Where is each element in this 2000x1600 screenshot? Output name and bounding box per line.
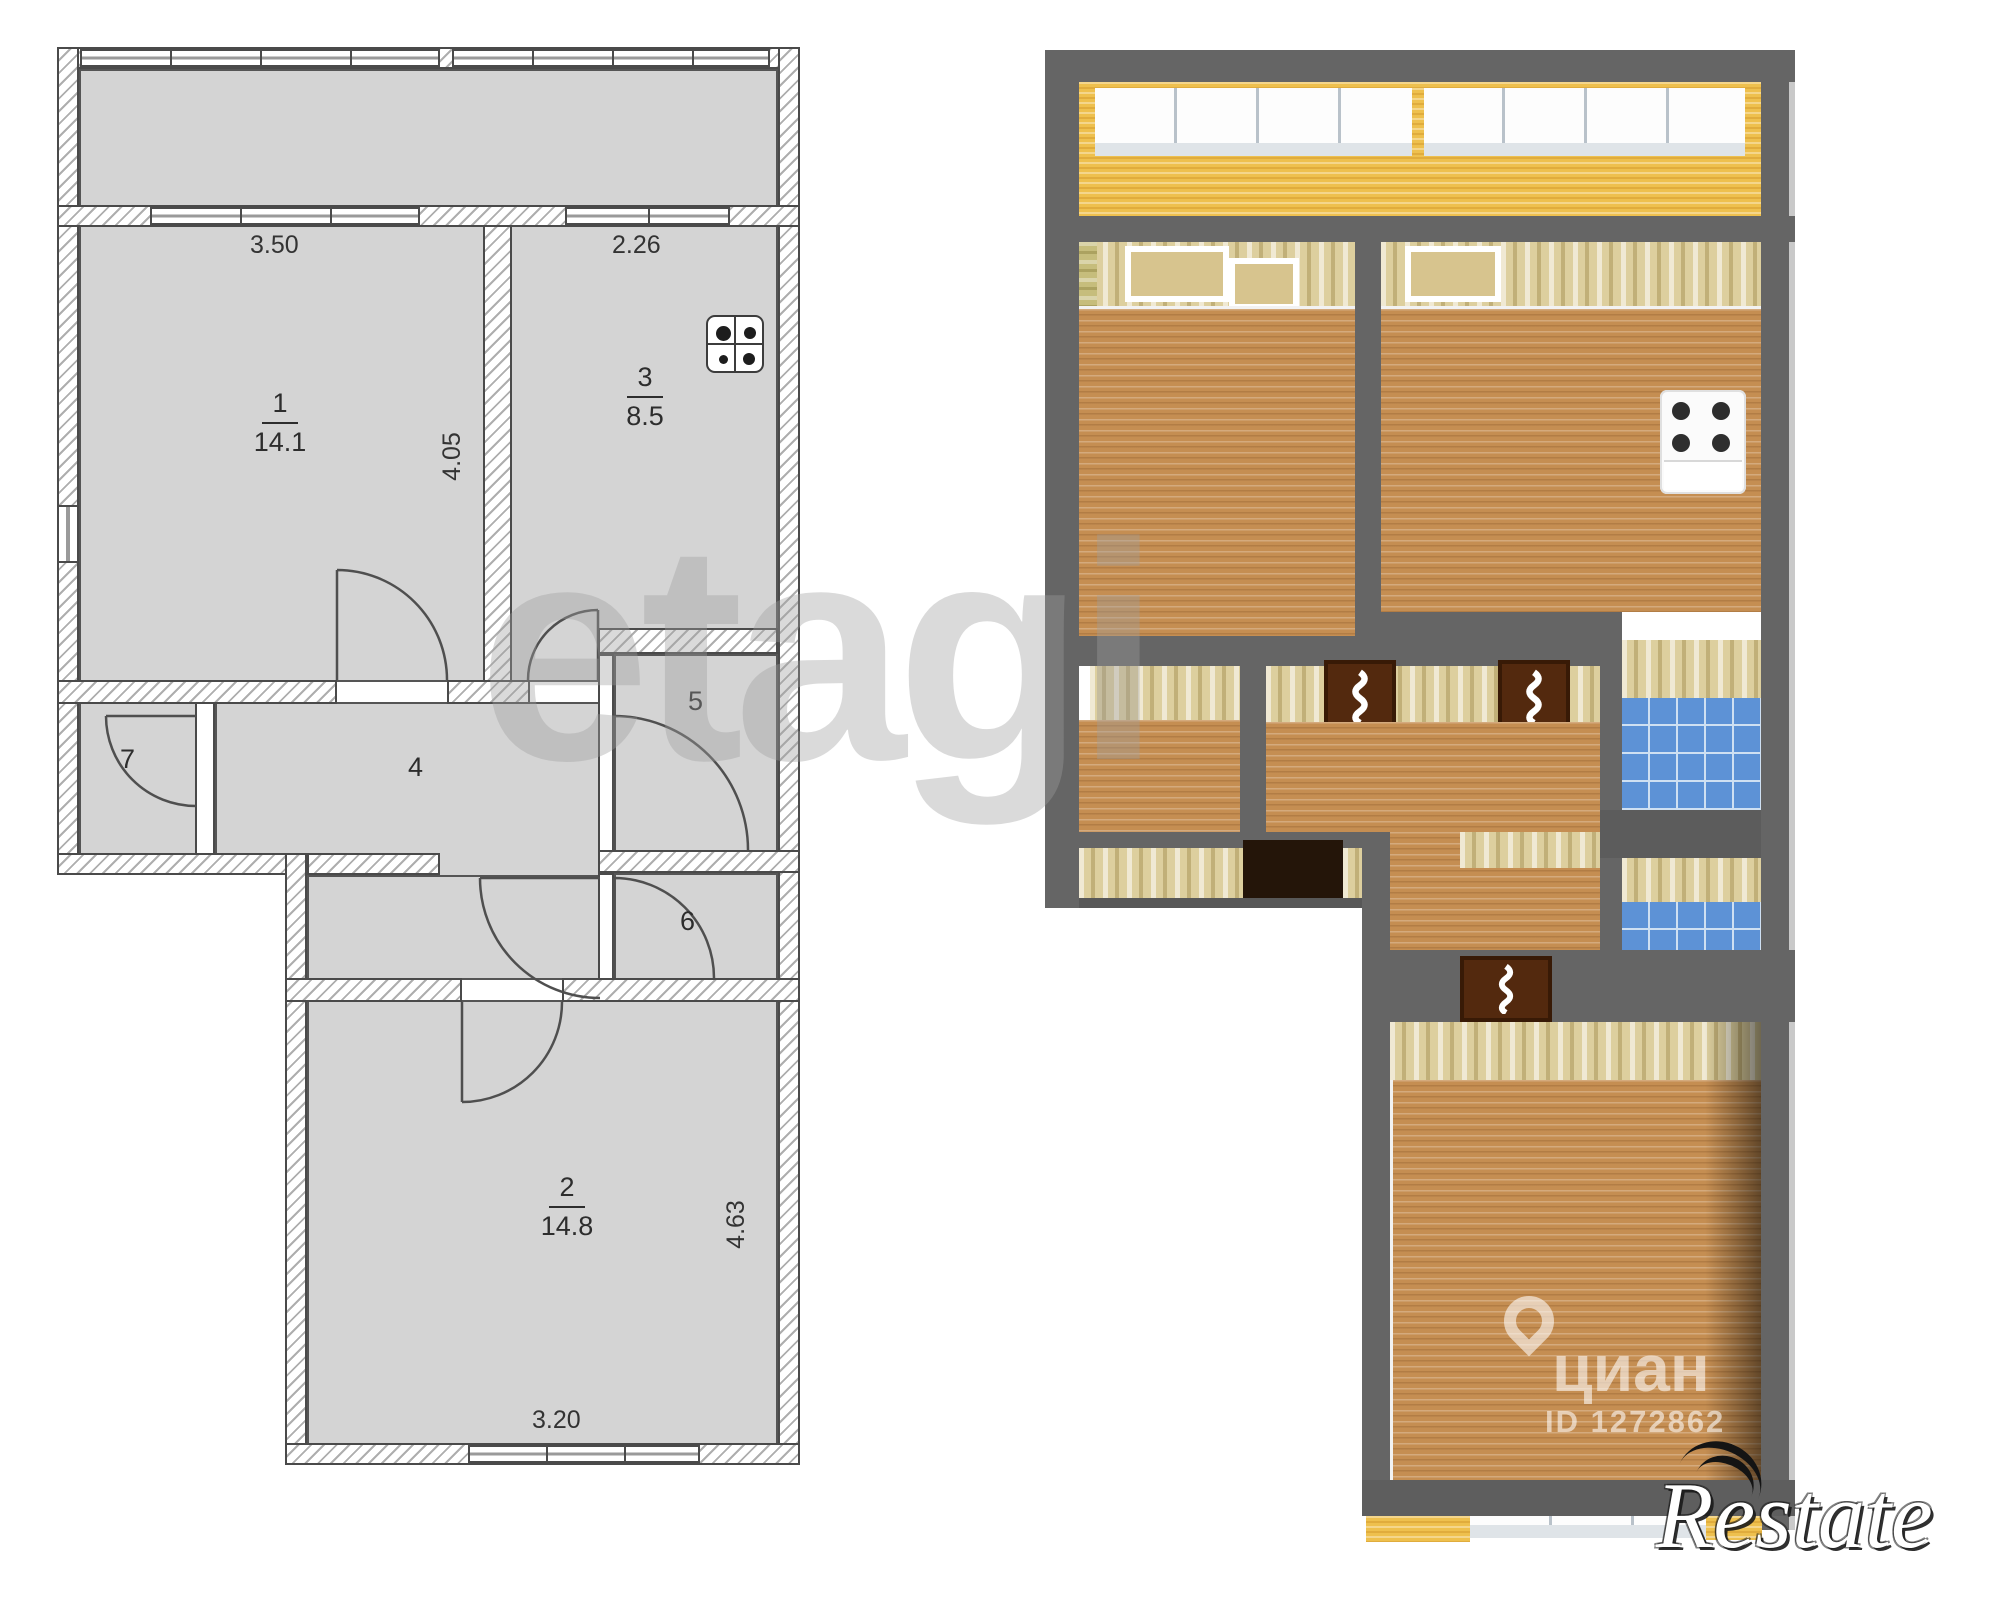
wall-corridor-left	[285, 853, 307, 1465]
room-area: 14.1	[225, 424, 335, 458]
burner-icon	[1672, 434, 1690, 452]
wall-room2-top-a	[285, 978, 462, 1002]
window-room1	[150, 207, 420, 225]
dim-room2-height: 4.63	[722, 1200, 751, 1249]
wall3d-left	[1045, 82, 1079, 908]
wall3d-hall-south-lip	[1079, 898, 1362, 908]
floor-plan-page: 1 14.1 3 8.5 2 14.8 4 5 6 7 3.50 2.26 4.…	[0, 0, 2000, 1600]
corridor-3d-wall	[1460, 832, 1600, 868]
room-1-label: 1 14.1	[225, 388, 335, 458]
room-3-kitchen-2d	[510, 225, 778, 682]
wall-under-room5	[598, 850, 800, 873]
wall3d-right	[1761, 82, 1795, 1530]
burner-icon	[719, 355, 728, 364]
room-3-label: 3 8.5	[590, 362, 700, 432]
burner-icon	[1712, 434, 1730, 452]
wall-room6-left	[598, 873, 614, 980]
window-top-left	[80, 49, 440, 67]
window-room2-bottom	[468, 1445, 700, 1463]
stove-icon	[706, 315, 764, 373]
wall3d-divider-1-3	[1355, 242, 1381, 642]
wall-rooms-bottom-a	[57, 680, 337, 704]
room7-3d-wall	[1090, 666, 1240, 720]
room-number: 2	[549, 1172, 584, 1208]
bathroom5-3d-tile-floor	[1622, 698, 1761, 810]
room-2-label: 2 14.8	[512, 1172, 622, 1242]
wall-left-upper	[57, 47, 79, 875]
burner-icon	[1712, 402, 1730, 420]
wall-room5-left	[598, 654, 614, 852]
room-6-label: 6	[680, 906, 695, 937]
room1-3d-window-2	[1229, 258, 1299, 310]
wall3d-room2-top	[1362, 950, 1795, 1022]
balcony-2d	[79, 69, 778, 207]
window-room3	[565, 207, 730, 225]
wall3d-under-balcony	[1045, 216, 1795, 242]
dim-room1-width: 3.50	[250, 231, 299, 260]
open-door-icon	[1460, 956, 1552, 1022]
room-5-label: 5	[688, 686, 703, 717]
room2-3d-wall-shadow	[1705, 1022, 1761, 1480]
kitchen-3d-window	[1405, 246, 1501, 302]
room-area: 8.5	[590, 398, 700, 432]
wall-rooms-bottom-b	[447, 680, 530, 704]
dim-room1-height: 4.05	[438, 432, 467, 481]
burner-icon	[716, 326, 731, 341]
balcony-3d-mullion	[1412, 88, 1424, 156]
wall-room7-right	[195, 702, 215, 855]
room-5-2d	[614, 654, 778, 852]
room-7-label: 7	[120, 744, 135, 775]
wall-room5-top	[598, 628, 778, 654]
burner-icon	[1672, 402, 1690, 420]
bathroom6-3d-wall	[1622, 858, 1761, 902]
wall-right	[778, 47, 800, 1465]
window-left-wall	[57, 505, 79, 563]
wall3d-bath-mid	[1600, 810, 1761, 858]
wall3d-top	[1045, 50, 1795, 82]
wall-divider-room1-room3	[483, 225, 512, 682]
hall-3d-doorway-dark	[1243, 840, 1343, 898]
wall-bottom-left-block	[57, 853, 307, 875]
room-number: 3	[627, 362, 662, 398]
room1-3d-floor	[1079, 306, 1355, 636]
bathroom5-3d-wall	[1622, 640, 1761, 698]
wall3d-room7-right	[1240, 666, 1266, 832]
wall-corridor-top	[307, 853, 440, 875]
room1-3d-window	[1125, 246, 1229, 302]
room-area: 14.8	[512, 1208, 622, 1242]
stove-front	[1664, 460, 1742, 490]
room-7-2d	[79, 702, 197, 855]
room2-3d-sill-left	[1366, 1516, 1470, 1542]
dim-room3-width: 2.26	[612, 231, 661, 260]
room7-3d-floor	[1079, 720, 1240, 832]
room-6-2d	[614, 873, 778, 980]
window-top-right	[452, 49, 770, 67]
burner-icon	[744, 327, 756, 339]
dim-room2-width: 3.20	[532, 1406, 581, 1435]
stove-icon	[1660, 390, 1746, 494]
room-4-label: 4	[408, 752, 423, 783]
hall-3d-floor	[1266, 722, 1600, 832]
wall3d-room2-left	[1362, 832, 1390, 1516]
wall-room2-top-b	[562, 978, 800, 1002]
burner-icon	[743, 353, 755, 365]
room-number: 1	[262, 388, 297, 424]
